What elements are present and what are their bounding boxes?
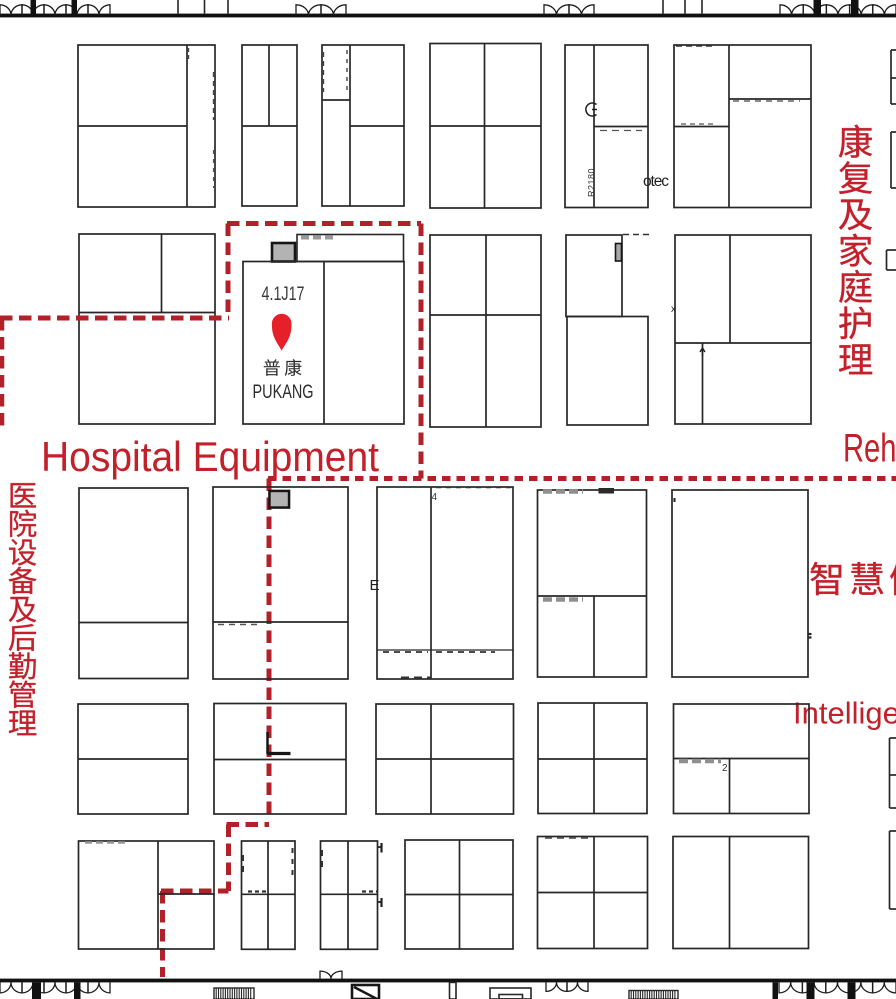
svg-text:R2180: R2180 bbox=[587, 168, 597, 197]
svg-text:4.1J17: 4.1J17 bbox=[262, 284, 305, 305]
svg-text:x: x bbox=[671, 304, 676, 315]
svg-text:Hospital Equipment: Hospital Equipment bbox=[41, 433, 379, 480]
svg-text:Reh: Reh bbox=[843, 427, 896, 471]
svg-text:2: 2 bbox=[722, 763, 728, 774]
svg-text:4: 4 bbox=[432, 492, 438, 503]
svg-text:E: E bbox=[370, 577, 380, 594]
svg-text:otec: otec bbox=[643, 173, 669, 190]
svg-text:PUKANG: PUKANG bbox=[253, 382, 314, 403]
